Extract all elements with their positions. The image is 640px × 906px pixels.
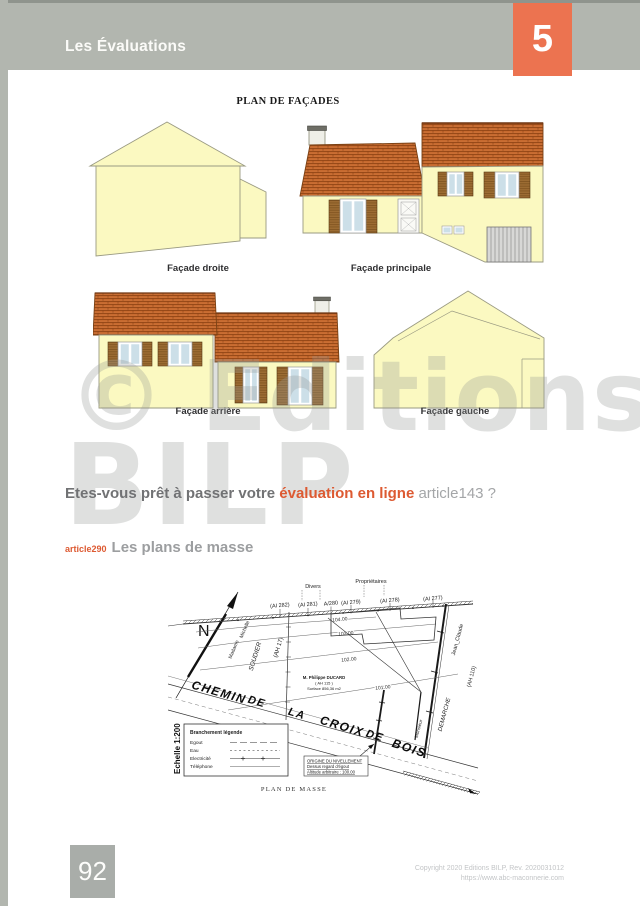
window-left xyxy=(438,172,473,196)
french-door-b xyxy=(277,367,323,405)
road-word: BOIS xyxy=(390,736,428,760)
road-word: DE xyxy=(246,694,267,711)
parcel-label: (AI 278) xyxy=(380,597,400,605)
evaluation-question: Etes-vous prêt à passer votre évaluation… xyxy=(65,485,496,502)
parcel-label: (AI 279) xyxy=(341,599,361,607)
facade-arriere-figure xyxy=(93,289,343,418)
left-roof xyxy=(93,293,217,335)
parcel-label: (AI 282) xyxy=(270,602,290,610)
owner-parcel: ( AH 115 ) xyxy=(315,681,333,686)
legend-title: Branchement légende xyxy=(190,730,242,736)
right-roof xyxy=(422,123,543,167)
neighbor-right-name: Jean_Claude xyxy=(451,623,465,656)
page-number-badge: 92 xyxy=(70,845,115,898)
window-right xyxy=(484,172,530,198)
question-prefix: Etes-vous prêt à passer votre xyxy=(65,485,279,502)
wall xyxy=(96,166,240,256)
facade-arriere-label: Façade arrière xyxy=(138,406,278,417)
facade-droite-house xyxy=(90,122,266,256)
facade-arriere-house xyxy=(93,293,339,408)
chimney xyxy=(314,297,331,313)
french-door xyxy=(329,199,377,233)
site-plan-caption: PLAN DE MASSE xyxy=(261,786,327,793)
levelling-line2: Dessus regard d'égout xyxy=(307,764,350,769)
parcel-label: (AI 281) xyxy=(298,601,318,609)
facade-principale-label: Façade principale xyxy=(321,263,461,274)
copyright-block: Copyright 2020 Editions BILP, Rev. 20200… xyxy=(415,864,564,883)
neighbor-left: Madame Michelle SOUDIER (AH 17) xyxy=(228,620,285,672)
garage-door xyxy=(487,227,531,262)
panel-door xyxy=(398,199,419,233)
page-title: Les Évaluations xyxy=(65,38,186,56)
facade-principale-figure xyxy=(293,121,545,268)
neighbor-right-surname: DEMARCHE xyxy=(438,696,453,732)
road-word: DE xyxy=(364,728,385,745)
document-page: Les Évaluations 5 PLAN DE FAÇADES Façade… xyxy=(0,0,640,906)
neighbor-left-name2: Michelle xyxy=(239,620,252,639)
road-word: CHEMIN xyxy=(190,678,248,707)
legend-item: Eau xyxy=(190,748,199,754)
legend-item: Egout xyxy=(190,740,203,746)
chapter-number-badge: 5 xyxy=(513,3,572,76)
north-boundary xyxy=(168,600,473,626)
contour-labels: 104.00 103.00 102.00 101.00 xyxy=(332,616,391,692)
section-title: Les plans de masse xyxy=(112,539,254,556)
levelling-line1: ORIGINE DU NIVELLEMENT xyxy=(307,759,363,764)
top-label-divers: Divers xyxy=(305,584,321,590)
facade-gauche-house xyxy=(374,291,544,408)
levelling-line3: Altitude arbitraire : 100.00 xyxy=(307,770,356,775)
neighbor-left-parcel: (AH 17) xyxy=(273,637,285,659)
facade-gauche-label: Façade gauche xyxy=(385,406,525,417)
facade-arriere-drawing xyxy=(93,289,343,413)
road-word: LA xyxy=(287,706,307,722)
copyright-url[interactable]: https://www.abc-maconnerie.com xyxy=(415,874,564,884)
neighbor-left-surname: SOUDIER xyxy=(248,641,263,672)
article-ref: article290 xyxy=(65,544,107,554)
owner-block: M. Philippe DUCARD ( AH 115 ) Surface 85… xyxy=(303,675,346,691)
right-roof xyxy=(215,313,339,362)
parcel-label: (AI 277) xyxy=(423,595,443,603)
legend-item: Téléphone xyxy=(190,764,213,770)
facades-plan-title: PLAN DE FAÇADES xyxy=(188,96,388,107)
contour-label: 102.00 xyxy=(341,656,357,664)
contour-label: 104.00 xyxy=(332,616,348,624)
facade-gauche-drawing xyxy=(372,289,548,411)
parcel-label: A/280 xyxy=(323,600,338,607)
window-b xyxy=(158,342,202,366)
legend-box: Branchement légende Egout Eau Electricit… xyxy=(184,724,288,776)
left-edge-strip xyxy=(0,0,8,906)
gable-body xyxy=(374,291,544,408)
site-plan-drawing: N (AI 282) (AI 281) A/280 ( xyxy=(168,572,480,800)
evaluation-link-text[interactable]: évaluation en ligne xyxy=(279,485,414,502)
facade-gauche-figure xyxy=(372,289,548,416)
facade-principale-house xyxy=(300,123,543,262)
legend-item: Electricité xyxy=(190,756,211,762)
chimney xyxy=(308,126,327,145)
left-roof xyxy=(300,143,425,196)
neighbor-right-parcel: (AH 110) xyxy=(466,665,477,688)
scale-label: Echelle 1:200 xyxy=(173,723,182,774)
facade-droite-drawing xyxy=(88,118,268,264)
levelling-box: ORIGINE DU NIVELLEMENT Dessus regard d'é… xyxy=(304,744,374,776)
facade-droite-label: Façade droite xyxy=(128,263,268,274)
facade-principale-drawing xyxy=(293,121,545,263)
gable-roof xyxy=(90,122,245,166)
facade-droite-figure xyxy=(88,118,268,269)
french-door-a xyxy=(235,367,267,403)
road-word: CROIX xyxy=(318,713,366,740)
window-a xyxy=(108,342,152,366)
copyright-line: Copyright 2020 Editions BILP, Rev. 20200… xyxy=(415,864,564,874)
lean-to xyxy=(238,178,266,238)
owner-name: M. Philippe DUCARD xyxy=(303,675,346,680)
section-heading: article290Les plans de masse xyxy=(65,539,253,557)
owner-surface: Surface 856,36 m2 xyxy=(307,686,342,691)
question-article-ref: article143 ? xyxy=(414,485,496,502)
top-label-proprietaires: Propriétaires xyxy=(355,579,386,585)
